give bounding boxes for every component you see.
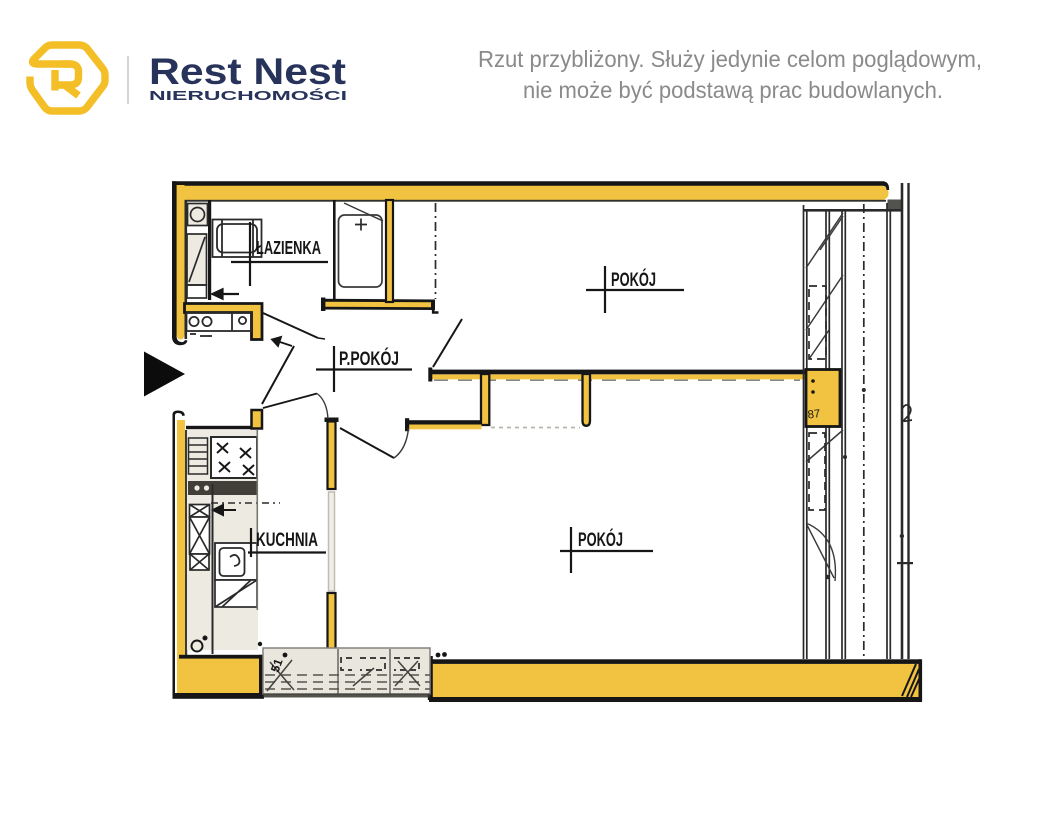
svg-text:nie może być podstawą prac bud: nie może być podstawą prac budowlanych.	[523, 77, 943, 103]
svg-text:87: 87	[807, 408, 821, 421]
svg-text:KUCHNIA: KUCHNIA	[256, 530, 318, 551]
svg-text:Rzut przybliżony. Służy jedyni: Rzut przybliżony. Służy jedynie celom po…	[478, 46, 982, 72]
svg-text:POKÓJ: POKÓJ	[611, 269, 656, 291]
svg-text:POKÓJ: POKÓJ	[578, 529, 623, 551]
svg-text:Rest Nest: Rest Nest	[149, 51, 346, 92]
svg-text:P.POKÓJ: P.POKÓJ	[339, 348, 399, 370]
svg-text:NIERUCHOMOŚCI: NIERUCHOMOŚCI	[149, 88, 347, 103]
svg-text:ŁAZIENKA: ŁAZIENKA	[256, 237, 321, 258]
